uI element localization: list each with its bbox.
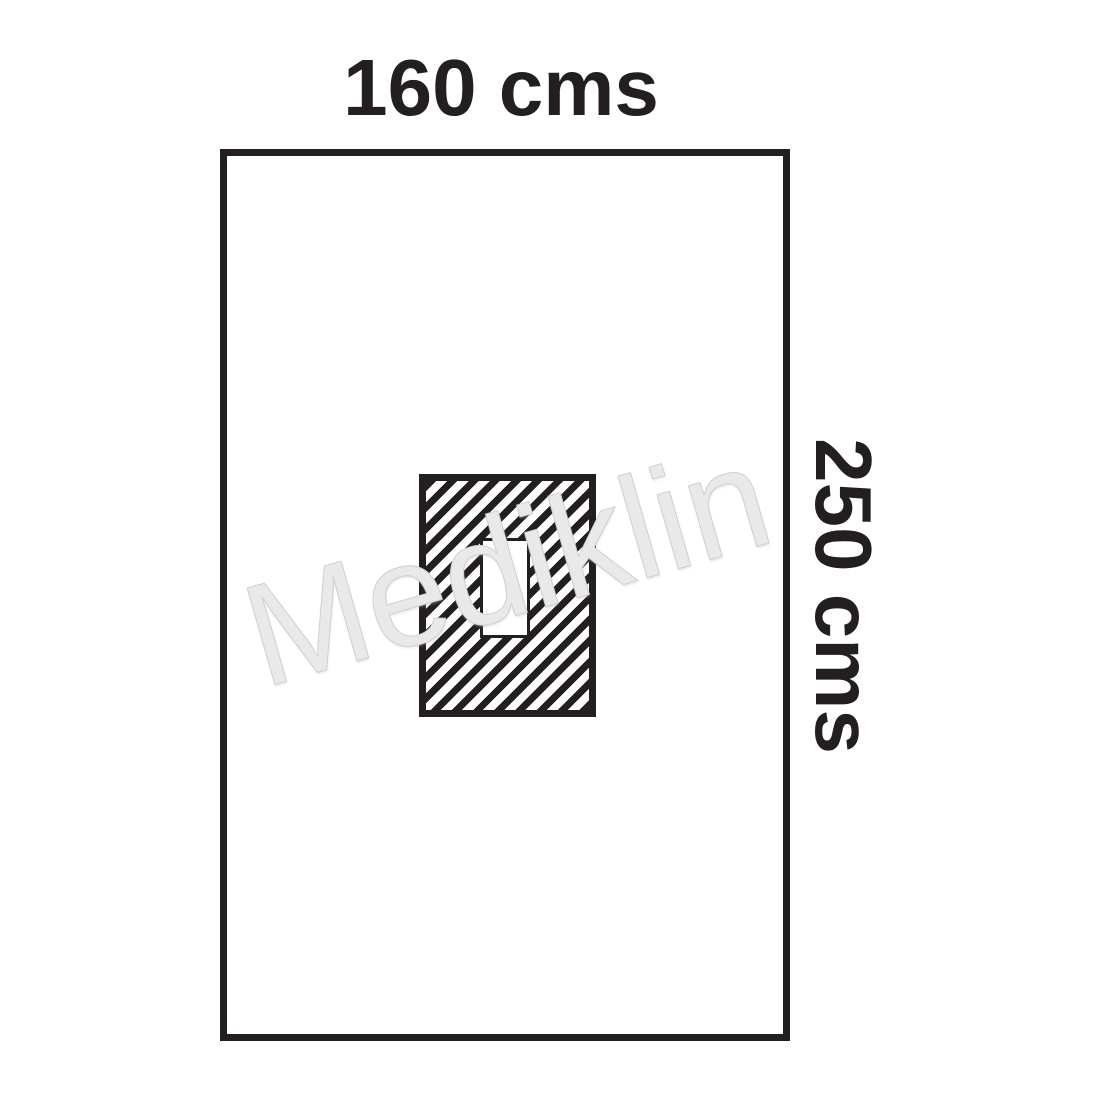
fenestration-opening	[480, 538, 530, 638]
adhesive-aperture-area	[419, 474, 596, 717]
width-dimension-label: 160 cms	[343, 48, 659, 128]
height-dimension-label: 250 cms	[803, 438, 883, 754]
diagram-canvas: 160 cms Mediklin 250 cms	[0, 0, 1100, 1100]
